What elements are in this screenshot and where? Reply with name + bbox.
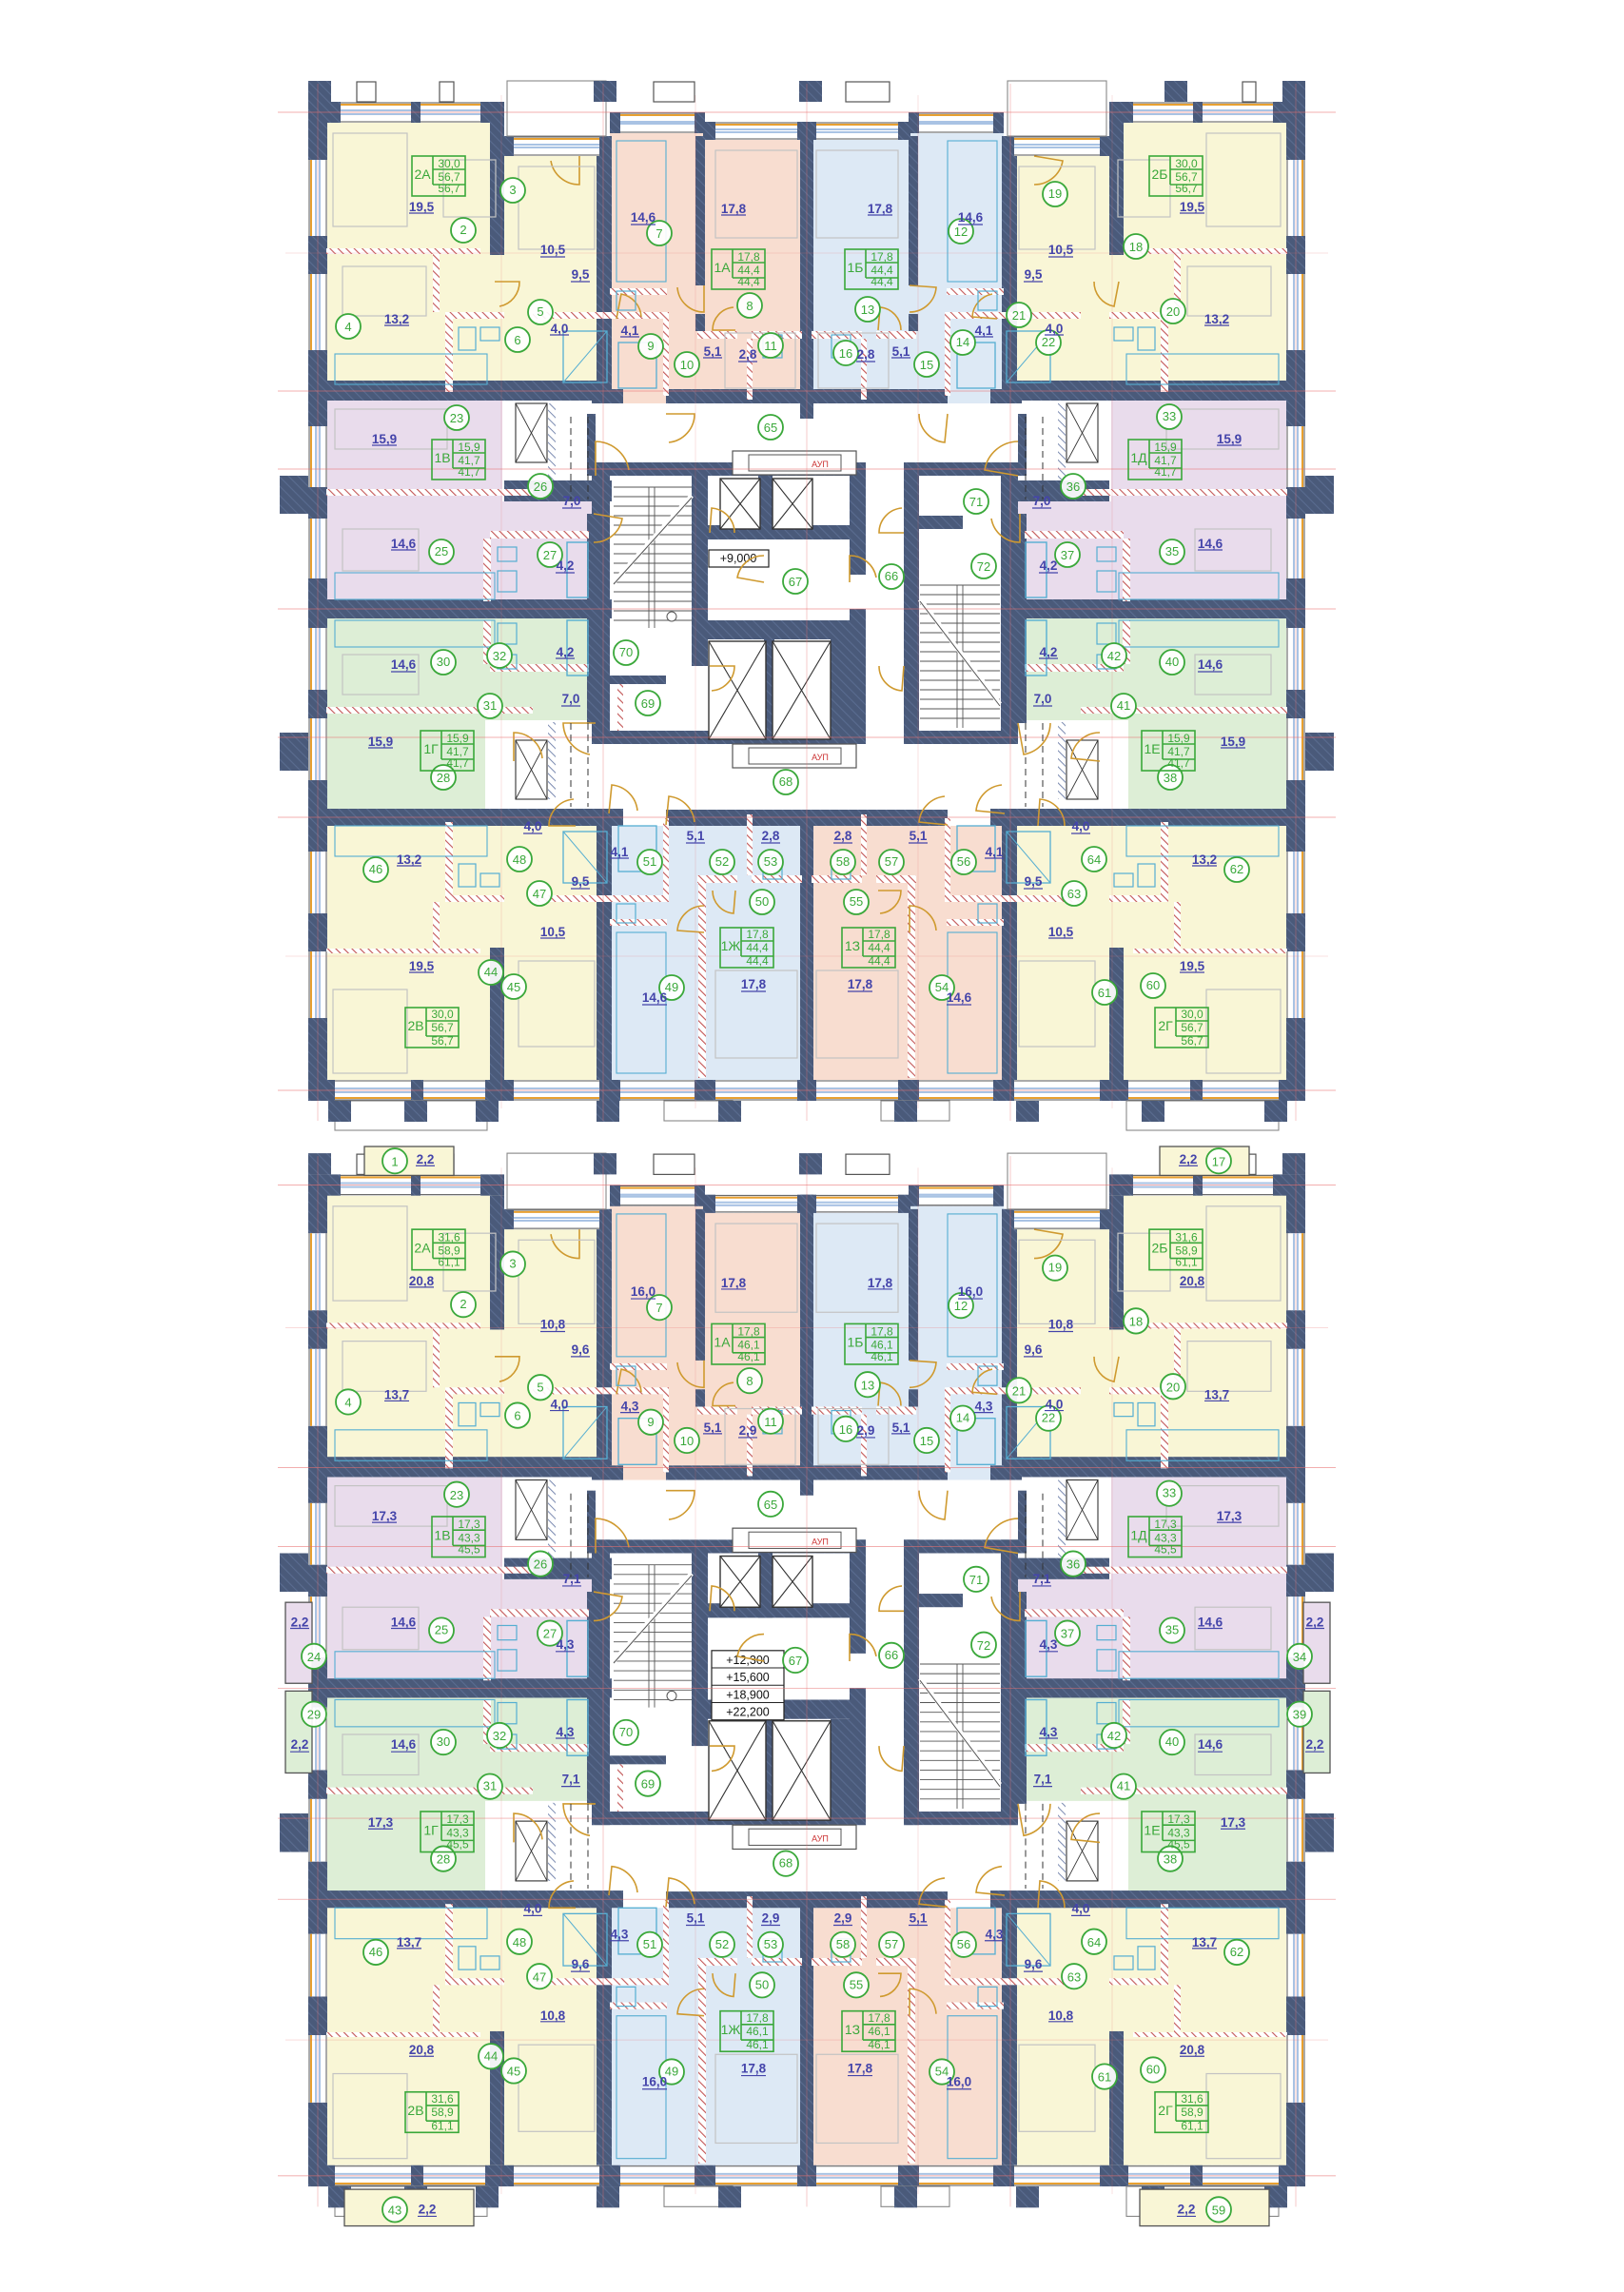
svg-text:37: 37: [1061, 548, 1074, 562]
svg-text:30,0: 30,0: [438, 157, 460, 170]
svg-text:15: 15: [920, 358, 933, 372]
svg-text:57: 57: [885, 854, 898, 869]
svg-text:44: 44: [484, 965, 498, 979]
svg-text:2,2: 2,2: [419, 2202, 437, 2216]
svg-text:1Б: 1Б: [848, 1335, 864, 1350]
svg-text:10,8: 10,8: [540, 2008, 566, 2023]
svg-text:1Ж: 1Ж: [721, 2022, 741, 2037]
svg-text:13: 13: [861, 303, 874, 317]
svg-text:17,8: 17,8: [741, 977, 767, 991]
svg-text:41,7: 41,7: [1167, 756, 1190, 770]
svg-text:4,2: 4,2: [1040, 645, 1058, 659]
svg-text:2: 2: [460, 1297, 466, 1311]
svg-text:12: 12: [954, 1299, 968, 1313]
svg-text:9,5: 9,5: [1025, 267, 1043, 282]
svg-text:26: 26: [534, 480, 547, 494]
svg-text:2,2: 2,2: [291, 1737, 309, 1752]
svg-text:15,9: 15,9: [458, 441, 480, 454]
svg-text:23: 23: [450, 411, 463, 425]
svg-text:13,7: 13,7: [1192, 1935, 1217, 1949]
svg-text:19,5: 19,5: [1180, 959, 1205, 973]
svg-text:30,0: 30,0: [1175, 157, 1198, 170]
svg-text:17,3: 17,3: [372, 1509, 398, 1523]
svg-text:17,8: 17,8: [868, 202, 893, 216]
svg-text:4,0: 4,0: [551, 322, 569, 336]
svg-text:17,3: 17,3: [1217, 1509, 1242, 1523]
svg-text:16: 16: [839, 1422, 852, 1437]
svg-text:9,5: 9,5: [1025, 874, 1043, 889]
svg-text:2,8: 2,8: [739, 347, 757, 362]
svg-text:44,4: 44,4: [737, 275, 760, 288]
svg-text:+15,600: +15,600: [726, 1671, 770, 1684]
svg-text:46,1: 46,1: [746, 2025, 769, 2038]
svg-text:17,3: 17,3: [1154, 1518, 1177, 1531]
svg-text:5,1: 5,1: [892, 1420, 910, 1435]
svg-text:6: 6: [514, 1409, 520, 1423]
svg-text:15,9: 15,9: [1154, 441, 1177, 454]
svg-text:17,3: 17,3: [1221, 1815, 1246, 1830]
svg-text:47: 47: [533, 887, 546, 901]
svg-text:7,1: 7,1: [1034, 1773, 1052, 1787]
svg-text:1В: 1В: [434, 450, 450, 465]
svg-text:46: 46: [369, 862, 382, 876]
svg-text:4,1: 4,1: [986, 845, 1004, 859]
svg-text:4: 4: [344, 1395, 351, 1409]
svg-text:14,6: 14,6: [642, 990, 668, 1005]
svg-text:47: 47: [533, 1969, 546, 1984]
svg-text:59: 59: [1212, 2203, 1225, 2217]
svg-text:51: 51: [643, 854, 656, 869]
svg-text:20: 20: [1166, 1380, 1180, 1394]
svg-text:4,3: 4,3: [1040, 1637, 1058, 1652]
svg-text:17,8: 17,8: [746, 2011, 769, 2025]
svg-text:22: 22: [1042, 1411, 1055, 1425]
svg-text:62: 62: [1230, 862, 1243, 876]
svg-text:41,7: 41,7: [458, 465, 480, 479]
svg-text:13,2: 13,2: [384, 312, 409, 326]
svg-text:32: 32: [493, 1729, 506, 1743]
svg-text:45,5: 45,5: [458, 1542, 480, 1556]
svg-text:5,1: 5,1: [704, 344, 722, 359]
svg-text:4,2: 4,2: [1040, 558, 1058, 573]
svg-text:2,2: 2,2: [1306, 1737, 1324, 1752]
svg-text:13,7: 13,7: [384, 1387, 409, 1401]
svg-text:66: 66: [885, 569, 898, 583]
svg-text:36: 36: [1066, 480, 1080, 494]
svg-text:7,1: 7,1: [563, 1572, 581, 1586]
svg-text:68: 68: [779, 774, 792, 789]
svg-text:64: 64: [1087, 1935, 1101, 1949]
svg-text:43: 43: [388, 2203, 401, 2217]
svg-text:17,8: 17,8: [871, 1324, 893, 1338]
svg-text:31,6: 31,6: [1181, 2092, 1203, 2106]
svg-text:42: 42: [1107, 1729, 1121, 1743]
svg-text:72: 72: [977, 1638, 990, 1653]
svg-text:17,8: 17,8: [741, 2061, 767, 2075]
svg-text:61,1: 61,1: [438, 1256, 460, 1269]
svg-text:41,7: 41,7: [446, 756, 469, 770]
svg-text:4,0: 4,0: [551, 1397, 569, 1411]
svg-text:44,4: 44,4: [746, 941, 769, 954]
svg-text:35: 35: [1165, 544, 1179, 558]
svg-text:5,1: 5,1: [704, 1420, 722, 1435]
svg-text:1Б: 1Б: [848, 260, 864, 275]
svg-text:5,1: 5,1: [910, 1910, 928, 1925]
svg-text:44,4: 44,4: [871, 275, 893, 288]
svg-text:9,5: 9,5: [572, 874, 590, 889]
svg-text:14: 14: [956, 335, 969, 349]
svg-text:5,1: 5,1: [892, 344, 910, 359]
svg-text:1Е: 1Е: [1144, 1822, 1160, 1837]
svg-text:АУП: АУП: [812, 460, 829, 469]
svg-text:18: 18: [1129, 1314, 1143, 1328]
svg-text:28: 28: [437, 771, 450, 785]
svg-text:51: 51: [643, 1937, 656, 1951]
svg-text:7,1: 7,1: [1033, 1572, 1051, 1586]
svg-text:АУП: АУП: [812, 753, 829, 762]
svg-text:4,3: 4,3: [557, 1725, 575, 1739]
svg-text:71: 71: [969, 1573, 983, 1587]
svg-text:10,5: 10,5: [540, 925, 566, 939]
svg-text:14,6: 14,6: [391, 657, 417, 672]
svg-text:17,3: 17,3: [446, 1812, 469, 1826]
svg-text:56,7: 56,7: [1175, 182, 1198, 195]
svg-text:50: 50: [755, 894, 769, 909]
svg-text:1: 1: [391, 1154, 398, 1168]
svg-text:39: 39: [1293, 1708, 1306, 1722]
svg-text:38: 38: [1164, 771, 1177, 785]
svg-text:1Г: 1Г: [423, 1822, 439, 1837]
svg-text:1В: 1В: [434, 1527, 450, 1542]
svg-text:16: 16: [839, 346, 852, 361]
svg-text:7: 7: [655, 1301, 662, 1315]
svg-text:1А: 1А: [714, 260, 731, 275]
svg-text:63: 63: [1067, 1969, 1081, 1984]
svg-text:28: 28: [437, 1852, 450, 1867]
svg-text:4: 4: [344, 320, 351, 334]
svg-text:44,4: 44,4: [868, 941, 890, 954]
svg-text:11: 11: [764, 1415, 776, 1429]
svg-text:2А: 2А: [414, 167, 431, 182]
svg-text:4,0: 4,0: [1072, 1901, 1090, 1915]
svg-text:6: 6: [514, 333, 520, 347]
svg-text:45,5: 45,5: [1154, 1542, 1177, 1556]
svg-text:14,6: 14,6: [958, 210, 984, 225]
svg-text:67: 67: [789, 1654, 802, 1668]
svg-text:17,8: 17,8: [848, 2061, 873, 2075]
svg-text:3: 3: [509, 183, 516, 197]
svg-text:4,1: 4,1: [621, 323, 639, 338]
svg-text:46: 46: [369, 1945, 382, 1959]
svg-text:58,9: 58,9: [1181, 2106, 1203, 2119]
svg-text:17,8: 17,8: [746, 928, 769, 941]
svg-text:4,1: 4,1: [975, 323, 993, 338]
svg-text:14,6: 14,6: [1198, 537, 1223, 551]
svg-text:56,7: 56,7: [431, 1034, 454, 1048]
svg-text:41: 41: [1117, 698, 1130, 713]
svg-text:16,0: 16,0: [631, 1284, 655, 1299]
svg-text:8: 8: [746, 1374, 753, 1388]
svg-text:21: 21: [1012, 308, 1026, 323]
svg-text:8: 8: [746, 299, 753, 313]
svg-text:9,6: 9,6: [1025, 1957, 1043, 1971]
svg-text:33: 33: [1163, 409, 1176, 423]
svg-text:13,2: 13,2: [1192, 852, 1217, 867]
svg-text:2Г: 2Г: [1158, 1018, 1173, 1033]
svg-text:15,9: 15,9: [1221, 735, 1245, 749]
svg-text:61: 61: [1098, 986, 1111, 1000]
svg-text:42: 42: [1107, 649, 1121, 663]
svg-text:56: 56: [957, 1937, 970, 1951]
svg-text:4,0: 4,0: [1072, 819, 1090, 833]
svg-text:10,5: 10,5: [1048, 925, 1074, 939]
svg-text:+18,900: +18,900: [726, 1688, 770, 1701]
svg-text:66: 66: [885, 1648, 898, 1662]
svg-text:15,9: 15,9: [1217, 432, 1242, 446]
svg-text:70: 70: [619, 645, 633, 659]
svg-text:5: 5: [537, 1380, 543, 1394]
svg-text:17,8: 17,8: [868, 928, 890, 941]
svg-text:20,8: 20,8: [1180, 1274, 1205, 1288]
svg-text:69: 69: [641, 1777, 655, 1792]
svg-text:29: 29: [307, 1708, 321, 1722]
svg-text:61,1: 61,1: [1181, 2119, 1203, 2132]
svg-text:41: 41: [1117, 1779, 1130, 1793]
svg-text:52: 52: [715, 854, 729, 869]
svg-text:16,0: 16,0: [642, 2075, 667, 2089]
svg-text:7,0: 7,0: [562, 692, 580, 706]
svg-text:2,9: 2,9: [739, 1423, 757, 1438]
svg-text:23: 23: [450, 1488, 463, 1502]
svg-text:2,9: 2,9: [834, 1910, 852, 1925]
svg-text:53: 53: [764, 1937, 777, 1951]
svg-text:56,7: 56,7: [431, 1021, 454, 1034]
svg-text:10,8: 10,8: [1048, 2008, 1074, 2023]
svg-text:61: 61: [1098, 2070, 1111, 2085]
svg-text:10: 10: [680, 1434, 694, 1448]
svg-text:2В: 2В: [407, 2103, 423, 2118]
svg-text:60: 60: [1146, 2062, 1160, 2076]
svg-text:2В: 2В: [407, 1018, 423, 1033]
svg-text:45: 45: [507, 2064, 520, 2078]
svg-text:9,5: 9,5: [572, 267, 590, 282]
svg-text:5,1: 5,1: [687, 1910, 705, 1925]
svg-text:55: 55: [850, 894, 863, 909]
svg-text:56,7: 56,7: [1181, 1034, 1203, 1048]
svg-text:11: 11: [764, 339, 777, 353]
svg-text:4,3: 4,3: [557, 1637, 575, 1652]
svg-text:9,6: 9,6: [572, 1342, 590, 1357]
svg-text:10,5: 10,5: [540, 243, 566, 257]
svg-text:4,0: 4,0: [1046, 1397, 1064, 1411]
svg-text:13,7: 13,7: [1204, 1387, 1229, 1401]
svg-text:37: 37: [1061, 1627, 1074, 1641]
svg-text:30: 30: [437, 655, 450, 669]
svg-text:20,8: 20,8: [1180, 2043, 1205, 2057]
svg-text:4,3: 4,3: [986, 1928, 1004, 1942]
svg-text:2,8: 2,8: [834, 829, 852, 843]
svg-text:36: 36: [1066, 1557, 1080, 1572]
svg-text:40: 40: [1165, 1734, 1179, 1749]
svg-text:17,8: 17,8: [737, 250, 760, 264]
svg-text:70: 70: [619, 1725, 633, 1739]
svg-text:53: 53: [764, 854, 777, 869]
svg-text:25: 25: [435, 1623, 448, 1637]
svg-text:17,8: 17,8: [868, 1276, 893, 1290]
svg-text:46,1: 46,1: [746, 2038, 769, 2051]
svg-text:14,6: 14,6: [631, 210, 656, 225]
svg-text:15,9: 15,9: [368, 735, 393, 749]
svg-text:27: 27: [543, 548, 557, 562]
svg-text:50: 50: [755, 1977, 769, 1991]
svg-text:14,6: 14,6: [1198, 1615, 1223, 1629]
svg-text:55: 55: [850, 1977, 863, 1991]
svg-text:17,3: 17,3: [368, 1815, 394, 1830]
svg-text:4,3: 4,3: [975, 1399, 993, 1413]
svg-text:62: 62: [1230, 1945, 1243, 1959]
svg-text:2,2: 2,2: [1180, 1152, 1198, 1166]
svg-text:7,0: 7,0: [1034, 692, 1052, 706]
svg-text:45,5: 45,5: [446, 1837, 469, 1851]
svg-text:41,7: 41,7: [1154, 465, 1177, 479]
svg-text:5,1: 5,1: [687, 829, 705, 843]
svg-text:14,6: 14,6: [947, 990, 972, 1005]
svg-text:22: 22: [1042, 335, 1055, 349]
svg-text:61,1: 61,1: [431, 2119, 454, 2132]
svg-text:40: 40: [1165, 655, 1179, 669]
svg-text:4,3: 4,3: [611, 1928, 629, 1942]
svg-text:45: 45: [507, 980, 520, 994]
svg-text:14,6: 14,6: [1198, 657, 1223, 672]
svg-text:2,9: 2,9: [857, 1423, 875, 1438]
svg-text:19,5: 19,5: [409, 959, 435, 973]
svg-text:17,8: 17,8: [737, 1324, 760, 1338]
svg-text:2,2: 2,2: [291, 1615, 309, 1629]
svg-text:10,5: 10,5: [1048, 243, 1074, 257]
svg-text:7: 7: [655, 226, 662, 241]
svg-text:15,9: 15,9: [446, 732, 469, 745]
svg-text:9: 9: [647, 1415, 654, 1429]
svg-text:14,6: 14,6: [1198, 1737, 1223, 1752]
svg-text:68: 68: [779, 1856, 792, 1871]
svg-text:17,3: 17,3: [458, 1518, 480, 1531]
svg-text:4,2: 4,2: [557, 645, 575, 659]
svg-text:2,9: 2,9: [762, 1910, 780, 1925]
svg-text:АУП: АУП: [812, 1833, 829, 1843]
svg-text:31,6: 31,6: [1175, 1230, 1198, 1244]
svg-text:12: 12: [954, 225, 968, 239]
svg-text:67: 67: [789, 575, 802, 589]
svg-text:2Б: 2Б: [1152, 167, 1168, 182]
svg-text:19: 19: [1048, 1261, 1062, 1275]
svg-text:4,0: 4,0: [1046, 322, 1064, 336]
svg-text:4,1: 4,1: [611, 845, 629, 859]
svg-text:5: 5: [537, 304, 543, 319]
svg-text:2,2: 2,2: [417, 1152, 435, 1166]
svg-text:16,0: 16,0: [947, 2075, 971, 2089]
svg-text:34: 34: [1293, 1650, 1306, 1664]
svg-text:7,0: 7,0: [563, 494, 581, 508]
svg-text:13,2: 13,2: [397, 852, 421, 867]
svg-text:10,8: 10,8: [540, 1317, 566, 1331]
svg-text:7,0: 7,0: [1033, 494, 1051, 508]
svg-text:2,8: 2,8: [857, 347, 875, 362]
svg-text:17,8: 17,8: [871, 250, 893, 264]
svg-text:20,8: 20,8: [409, 2043, 435, 2057]
svg-text:44,4: 44,4: [868, 954, 890, 968]
svg-text:31,6: 31,6: [438, 1230, 460, 1244]
svg-text:17,3: 17,3: [1167, 1812, 1190, 1826]
svg-text:65: 65: [764, 1498, 777, 1512]
svg-text:32: 32: [493, 649, 506, 663]
svg-text:26: 26: [534, 1557, 547, 1572]
svg-text:31,6: 31,6: [431, 2092, 454, 2106]
svg-text:33: 33: [1163, 1486, 1176, 1500]
svg-text:15,9: 15,9: [1167, 732, 1190, 745]
svg-text:4,0: 4,0: [524, 1901, 542, 1915]
svg-text:56,7: 56,7: [438, 182, 460, 195]
svg-text:1З: 1З: [845, 2022, 860, 2037]
svg-text:31: 31: [483, 698, 497, 713]
svg-text:46,1: 46,1: [871, 1350, 893, 1363]
svg-text:15: 15: [920, 1434, 933, 1448]
svg-text:61,1: 61,1: [1175, 1256, 1198, 1269]
svg-text:20: 20: [1166, 304, 1180, 319]
svg-text:64: 64: [1087, 852, 1101, 867]
svg-text:63: 63: [1067, 887, 1081, 901]
svg-text:17,8: 17,8: [721, 202, 747, 216]
svg-text:30: 30: [437, 1734, 450, 1749]
svg-text:1Е: 1Е: [1144, 741, 1160, 756]
svg-text:1З: 1З: [845, 938, 860, 953]
svg-text:13,2: 13,2: [1204, 312, 1229, 326]
svg-text:44: 44: [484, 2048, 498, 2063]
svg-text:1Ж: 1Ж: [721, 938, 741, 953]
svg-text:1А: 1А: [714, 1335, 731, 1350]
svg-text:17: 17: [1212, 1154, 1225, 1168]
svg-text:17,8: 17,8: [848, 977, 873, 991]
svg-text:+22,200: +22,200: [726, 1706, 770, 1719]
svg-text:4,2: 4,2: [557, 558, 575, 573]
svg-text:4,3: 4,3: [621, 1399, 639, 1413]
svg-text:АУП: АУП: [812, 1537, 829, 1546]
svg-text:45,5: 45,5: [1167, 1837, 1190, 1851]
svg-text:31: 31: [483, 1779, 497, 1793]
svg-text:44,4: 44,4: [746, 954, 769, 968]
svg-text:46,1: 46,1: [868, 2025, 890, 2038]
svg-text:5,1: 5,1: [910, 829, 928, 843]
svg-text:15,9: 15,9: [372, 432, 397, 446]
svg-text:9,6: 9,6: [1025, 1342, 1043, 1357]
svg-text:30,0: 30,0: [431, 1008, 454, 1021]
svg-text:17,8: 17,8: [868, 2011, 890, 2025]
svg-text:58,9: 58,9: [431, 2106, 454, 2119]
svg-text:18: 18: [1129, 240, 1143, 254]
svg-text:35: 35: [1165, 1623, 1179, 1637]
svg-text:48: 48: [513, 852, 526, 867]
svg-text:2Б: 2Б: [1152, 1240, 1168, 1255]
svg-text:2: 2: [460, 223, 466, 237]
svg-text:14,6: 14,6: [391, 1615, 417, 1629]
svg-text:60: 60: [1146, 978, 1160, 992]
svg-text:20,8: 20,8: [409, 1274, 435, 1288]
svg-text:19,5: 19,5: [1180, 200, 1205, 214]
svg-text:56: 56: [957, 854, 970, 869]
svg-text:13: 13: [861, 1378, 874, 1392]
svg-text:46,1: 46,1: [868, 2038, 890, 2051]
svg-text:52: 52: [715, 1937, 729, 1951]
svg-text:13,7: 13,7: [397, 1935, 421, 1949]
